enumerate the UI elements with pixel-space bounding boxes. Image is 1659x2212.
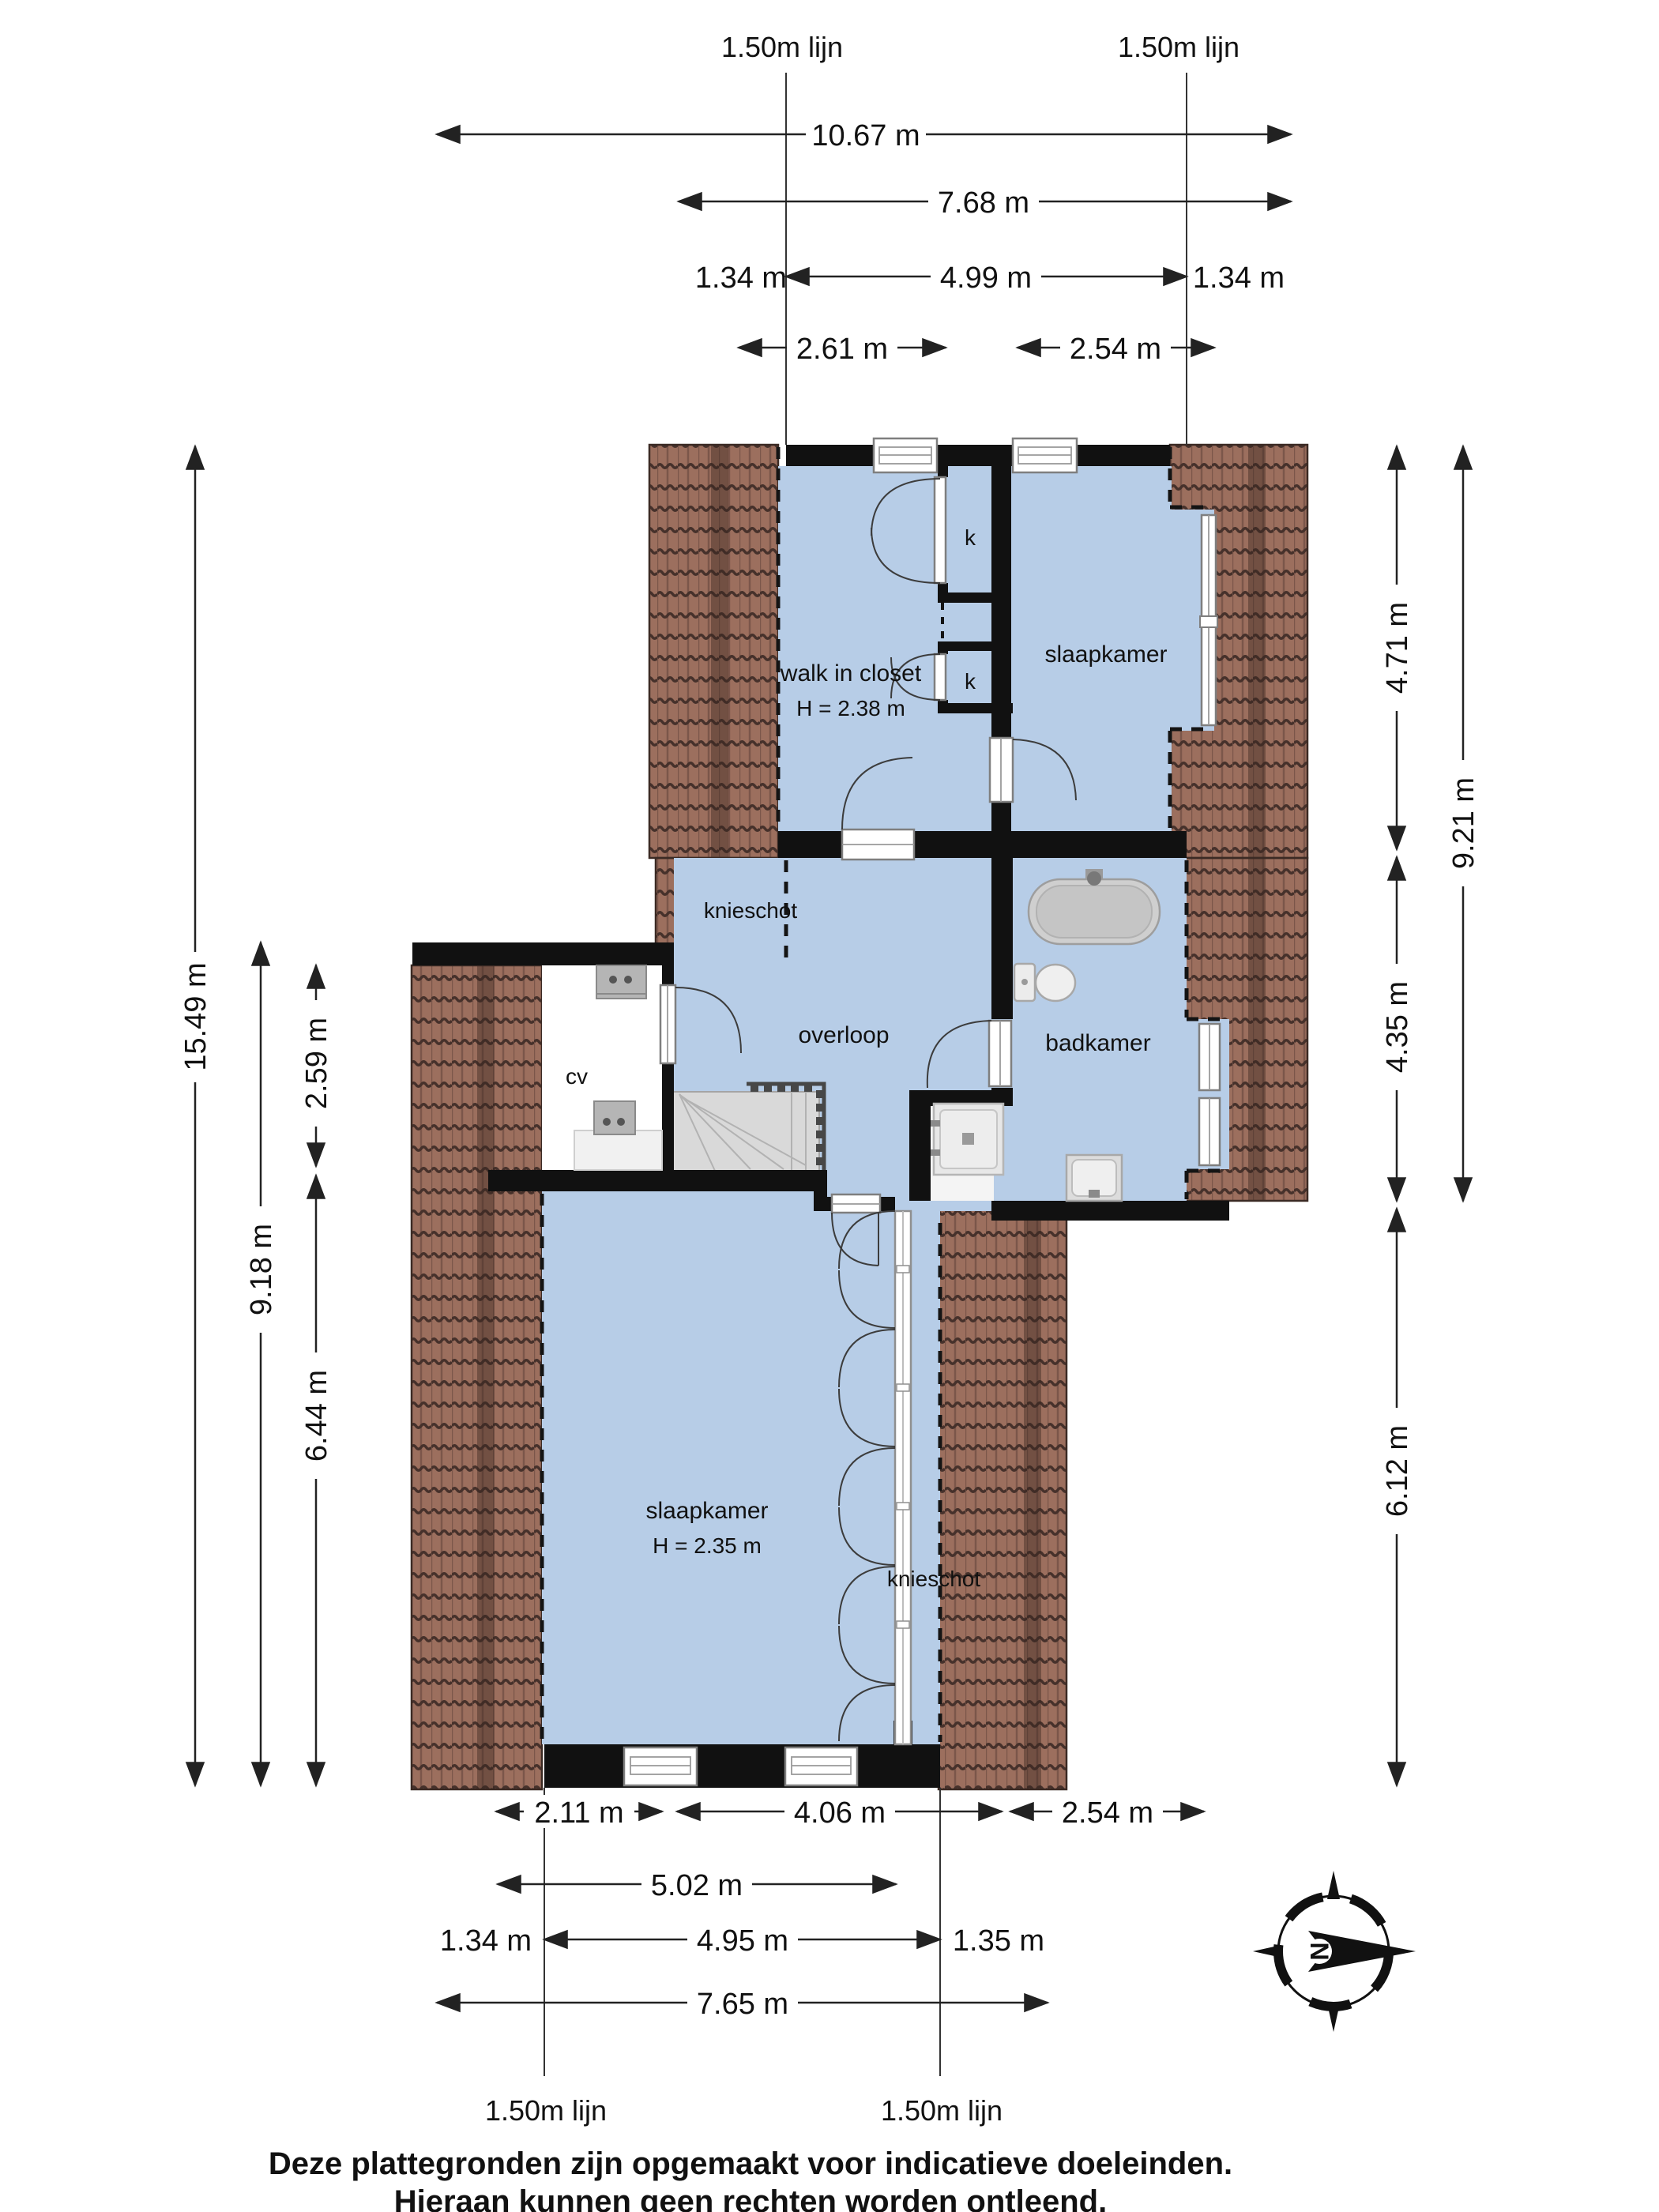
wall-cv-top	[412, 942, 674, 965]
disclaimer: Deze plattegronden zijn opgemaakt voor i…	[269, 2146, 1232, 2212]
dim-bottom-left-seg: 2.11 m	[534, 1796, 623, 1830]
dim-top-total: 10.67 m	[811, 119, 920, 152]
bedroom-top-label: slaapkamer	[1044, 641, 1167, 668]
lijn-label-bottom-right: 1.50m lijn	[881, 2094, 1003, 2127]
compass-icon: N	[1253, 1871, 1416, 2032]
staircase	[671, 1084, 824, 1171]
wall-bottom-exterior	[544, 1744, 940, 1788]
dim-top-building: 7.68 m	[938, 186, 1029, 220]
badkamer-label: badkamer	[1045, 1030, 1150, 1056]
dim-bottom-mid-seg: 4.06 m	[794, 1796, 886, 1830]
window-top-1	[874, 438, 937, 472]
wall-badkamer-left-upper	[991, 858, 1013, 1019]
dim-left-lower-total: 9.18 m	[245, 1224, 278, 1315]
wall-central-lower	[991, 800, 1011, 833]
wall-topblock-bottom	[778, 831, 1187, 858]
lijn-label-bottom-left: 1.50m lijn	[485, 2094, 607, 2127]
roof-ridge-band	[477, 965, 495, 1789]
dim-right-total: 9.21 m	[1447, 777, 1480, 869]
dim-left-total: 15.49 m	[179, 962, 213, 1070]
dim-bottom-right-offset: 1.35 m	[953, 1924, 1044, 1958]
roof-ridge-band	[1024, 1221, 1041, 1789]
bedroom-bottom-floor	[542, 1191, 940, 1744]
lijn-label-top-right: 1.50m lijn	[1118, 31, 1240, 63]
floorplan-page: walk in closet H = 2.38 m slaapkamer kni…	[0, 0, 1659, 2212]
dim-bottom-inner: 5.02 m	[651, 1869, 743, 1902]
dim-bottom-right-seg: 2.54 m	[1062, 1796, 1153, 1830]
wall-cv-bottom	[488, 1170, 827, 1191]
knieschot-bottom-label: knieschot	[887, 1567, 981, 1591]
toilet-icon	[1014, 964, 1075, 1001]
dim-top-span: 4.99 m	[940, 261, 1032, 295]
closet-mid-label: k	[965, 669, 976, 694]
cv-label: cv	[566, 1064, 588, 1089]
bedroom-bottom-height: H = 2.35 m	[653, 1533, 762, 1558]
window-bedroom-top-right	[1200, 515, 1217, 725]
dim-bottom-span: 4.95 m	[697, 1924, 788, 1958]
dim-top-room-left: 2.61 m	[796, 333, 888, 366]
dim-top-left-offset: 1.34 m	[695, 261, 787, 295]
walk-in-closet-label: walk in closet	[780, 660, 922, 687]
wall-central-upper	[991, 466, 1011, 739]
window-bottom-2	[785, 1747, 857, 1785]
dim-right-lower: 6.12 m	[1381, 1425, 1414, 1517]
dim-bottom-left-offset: 1.34 m	[440, 1924, 532, 1958]
walk-in-closet-height: H = 2.38 m	[796, 696, 905, 720]
wall-badkamer-bottom	[991, 1201, 1229, 1221]
window-badkamer-dormer-1	[1199, 1024, 1220, 1090]
disclaimer-line-1: Deze plattegronden zijn opgemaakt voor i…	[269, 2146, 1232, 2181]
cv-boiler-icon	[596, 965, 646, 999]
sink-icon	[1066, 1155, 1122, 1201]
roof-lower-right	[939, 1201, 1066, 1789]
compass-north-label: N	[1305, 1942, 1334, 1960]
window-bottom-1	[624, 1747, 697, 1785]
dim-bottom-total: 7.65 m	[697, 1988, 788, 2021]
window-top-2	[1013, 438, 1077, 472]
bedroom-bottom-label: slaapkamer	[645, 1498, 768, 1524]
wall-shower-left	[909, 1096, 931, 1201]
roof-lower-left	[412, 965, 542, 1789]
floorplan-canvas: walk in closet H = 2.38 m slaapkamer kni…	[0, 0, 1659, 2212]
dim-right-upper: 4.71 m	[1381, 602, 1414, 694]
dim-top-room-right: 2.54 m	[1070, 333, 1161, 366]
closet-top-label: k	[965, 525, 976, 550]
knieschot-top-label: knieschot	[704, 898, 798, 923]
dim-right-middle: 4.35 m	[1381, 981, 1414, 1073]
wall-top-exterior	[786, 445, 1170, 466]
dim-left-bedroom: 6.44 m	[300, 1370, 333, 1461]
dim-top-right-offset: 1.34 m	[1193, 261, 1285, 295]
disclaimer-line-2: Hieraan kunnen geen rechten worden ontle…	[394, 2184, 1107, 2212]
window-badkamer-dormer-2	[1199, 1098, 1220, 1165]
overloop-label: overloop	[798, 1022, 889, 1048]
lijn-label-top-left: 1.50m lijn	[721, 31, 843, 63]
shower-icon	[931, 1104, 1003, 1175]
dim-left-cv: 2.59 m	[300, 1018, 333, 1109]
roof-ridge-band	[1248, 445, 1266, 1201]
